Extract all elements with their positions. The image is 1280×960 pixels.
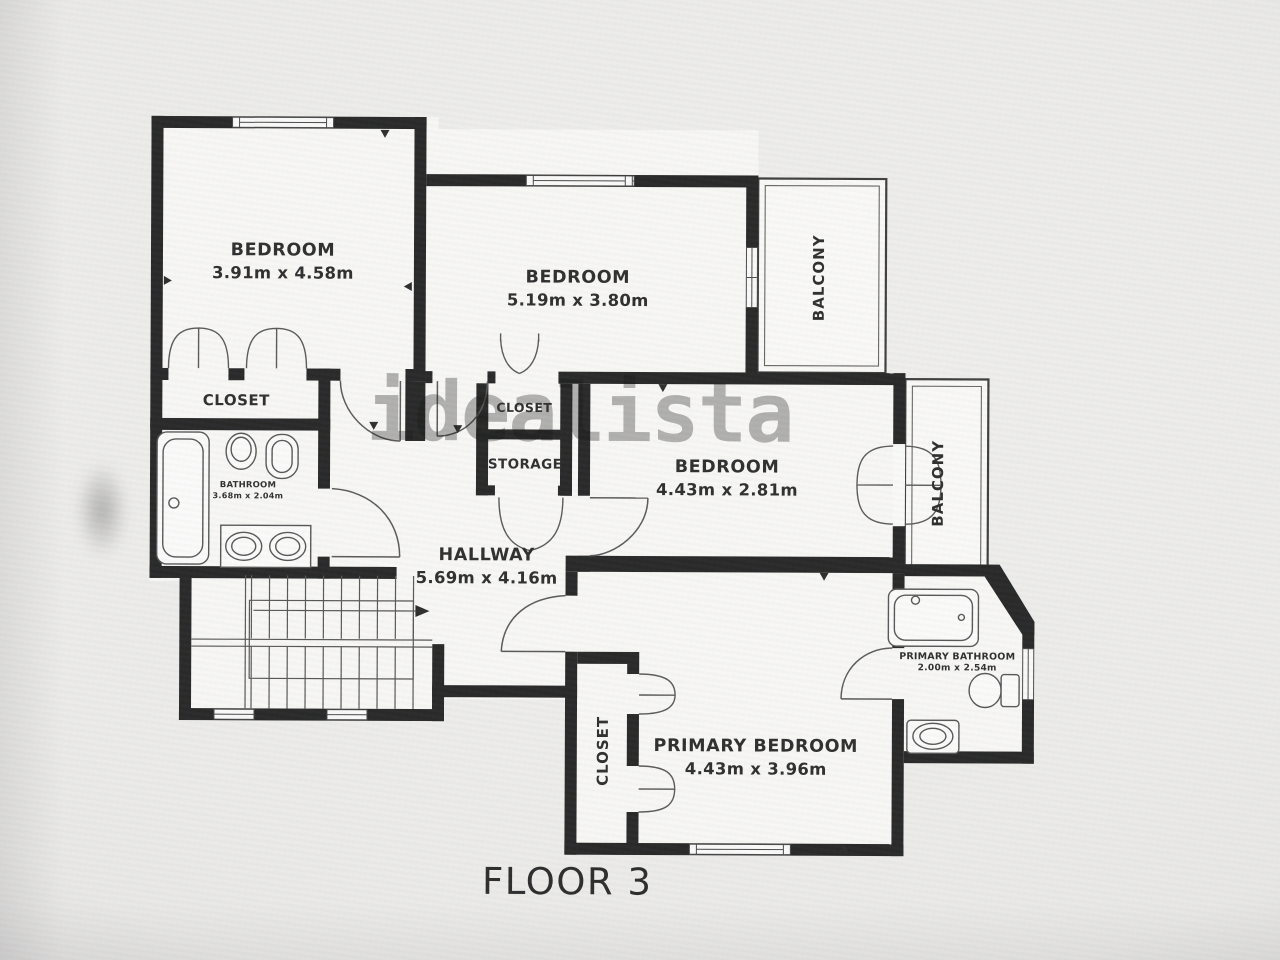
- watermark: idealista: [366, 365, 793, 463]
- room-label-closet-1: CLOSET: [203, 391, 270, 409]
- room-label-storage: STORAGE: [488, 456, 562, 472]
- floor-plan: idealista BEDROOM 3.91m x 4.58m BEDROOM …: [0, 0, 1280, 960]
- room-label-bathroom: BATHROOM 3.68m x 2.04m: [213, 480, 284, 500]
- photo-smudge: [76, 462, 128, 558]
- double-sink-icon: [221, 525, 311, 567]
- room-name: CLOSET: [203, 391, 270, 409]
- room-name: HALLWAY: [416, 545, 558, 566]
- room-name: BEDROOM: [212, 240, 354, 261]
- room-label-hallway: HALLWAY 5.69m x 4.16m: [416, 545, 558, 588]
- bidet-icon: [266, 434, 298, 478]
- primary-bathtub-icon: [888, 589, 978, 646]
- room-label-primary-bathroom: PRIMARY BATHROOM 2.00m x 2.54m: [899, 651, 1015, 674]
- room-label-closet-2: CLOSET: [496, 400, 552, 415]
- toilet-icon: [226, 433, 256, 469]
- room-name: CLOSET: [594, 716, 612, 786]
- room-name: PRIMARY BATHROOM: [899, 651, 1015, 663]
- room-dimensions: 5.69m x 4.16m: [416, 568, 558, 588]
- room-dimensions: 3.91m x 4.58m: [212, 263, 354, 283]
- room-label-bedroom-2: BEDROOM 5.19m x 3.80m: [507, 267, 649, 310]
- room-label-bedroom-3: BEDROOM 4.43m x 2.81m: [656, 457, 798, 500]
- room-name: BATHROOM: [213, 480, 284, 490]
- room-name: BEDROOM: [656, 457, 798, 478]
- room-label-bedroom-1: BEDROOM 3.91m x 4.58m: [212, 240, 354, 283]
- room-label-balcony-1: BALCONY: [810, 234, 828, 321]
- room-dimensions: 4.43m x 3.96m: [653, 759, 858, 779]
- room-label-primary-bedroom: PRIMARY BEDROOM 4.43m x 3.96m: [653, 736, 858, 779]
- room-dimensions: 5.19m x 3.80m: [507, 290, 649, 310]
- room-dimensions: 3.68m x 2.04m: [213, 491, 284, 500]
- floor-plan-drawing: [0, 0, 1280, 960]
- floor-title: FLOOR 3: [482, 860, 653, 904]
- room-label-balcony-2: BALCONY: [929, 440, 947, 527]
- room-label-closet-primary: CLOSET: [594, 716, 612, 786]
- room-name: BALCONY: [810, 234, 828, 321]
- bathtub-icon: [157, 432, 210, 564]
- primary-toilet-icon: [969, 673, 1019, 707]
- room-dimensions: 4.43m x 2.81m: [656, 480, 798, 500]
- room-name: STORAGE: [488, 456, 562, 472]
- room-name: BEDROOM: [507, 267, 649, 288]
- floorplan-photo: idealista BEDROOM 3.91m x 4.58m BEDROOM …: [0, 0, 1280, 960]
- room-name: BALCONY: [929, 440, 947, 527]
- room-name: PRIMARY BEDROOM: [654, 736, 859, 757]
- room-dimensions: 2.00m x 2.54m: [899, 663, 1015, 674]
- primary-sink-icon: [907, 720, 959, 753]
- room-name: CLOSET: [496, 400, 552, 415]
